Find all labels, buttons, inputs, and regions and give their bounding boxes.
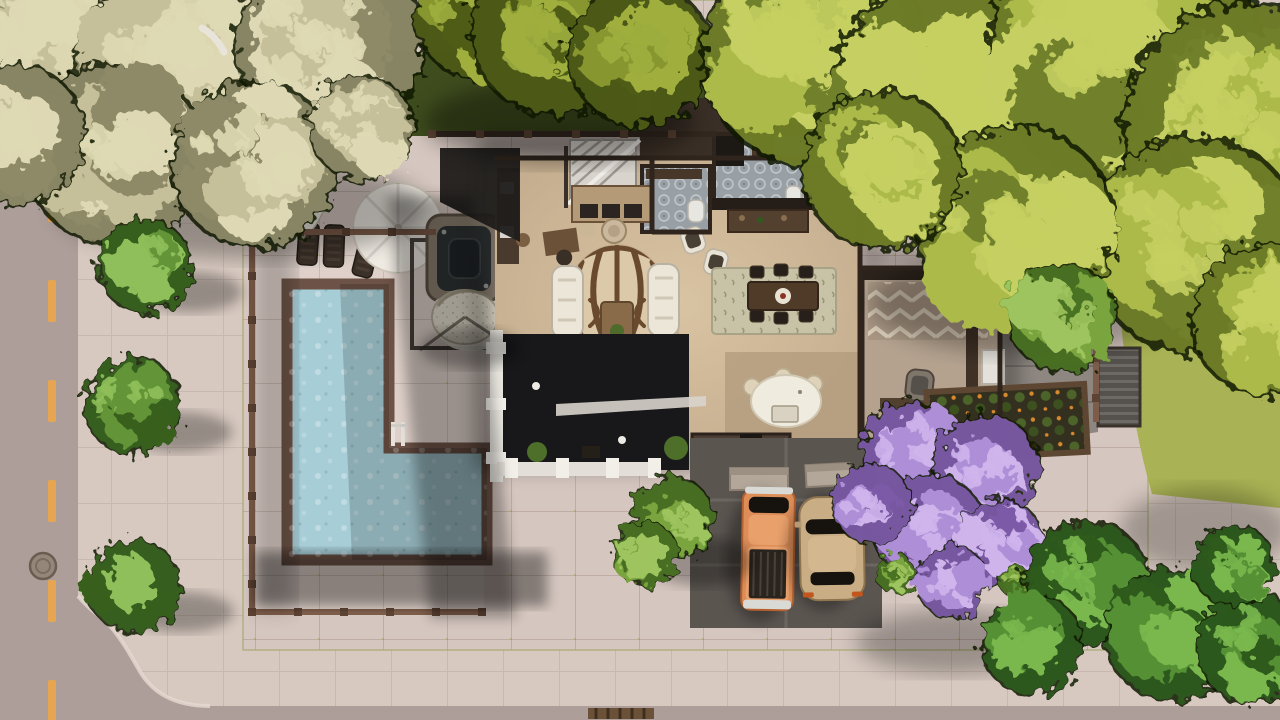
game-world-view: [0, 0, 1280, 720]
side-mirror: [795, 522, 802, 528]
manhole-cover: [30, 553, 56, 579]
dining-chair[interactable]: [774, 264, 788, 276]
cat[interactable]: [618, 436, 626, 444]
sofa[interactable]: [552, 266, 583, 338]
corrugated-stair[interactable]: [1098, 348, 1140, 426]
grill[interactable]: [582, 446, 600, 458]
road-dash: [48, 280, 56, 322]
sofa[interactable]: [648, 264, 679, 336]
swivel-chair[interactable]: [602, 219, 626, 243]
chartreuse-tree[interactable]: [801, 89, 963, 251]
dining-chair[interactable]: [799, 266, 813, 278]
lilac-leaf-accent[interactable]: [876, 554, 916, 595]
dining-chair[interactable]: [750, 310, 764, 322]
road-dash: [48, 680, 56, 720]
dining-chair[interactable]: [799, 310, 813, 322]
fence-post: [1092, 394, 1100, 402]
console-table[interactable]: [728, 210, 808, 232]
road-dash: [48, 380, 56, 422]
storm-drain: [588, 708, 654, 719]
toilet[interactable]: [688, 200, 704, 222]
dining-chair[interactable]: [774, 312, 788, 324]
driveway-planter[interactable]: [730, 468, 788, 490]
fence-post: [386, 608, 394, 616]
dark-courtyard: [486, 330, 706, 482]
south-wall: [497, 462, 659, 476]
fence-post: [340, 608, 348, 616]
street-tree[interactable]: [97, 218, 193, 314]
island-sink: [772, 406, 798, 422]
lilac-tree[interactable]: [915, 545, 990, 619]
courtyard-bush: [664, 436, 688, 460]
road-dash: [48, 580, 56, 622]
street-tree[interactable]: [83, 356, 182, 455]
cat[interactable]: [532, 382, 540, 390]
road-dash: [48, 480, 56, 522]
lilac-tree[interactable]: [832, 464, 913, 545]
dining-chair[interactable]: [750, 266, 764, 278]
yard-tree[interactable]: [613, 521, 679, 587]
courtyard-bush: [527, 442, 547, 462]
dining-area: [712, 264, 836, 334]
kitchen-stool[interactable]: [581, 223, 595, 237]
corner-tree[interactable]: [1192, 524, 1277, 609]
pale-olive-tree[interactable]: [309, 75, 416, 182]
window-wall: [712, 198, 812, 210]
fence-post: [294, 608, 302, 616]
